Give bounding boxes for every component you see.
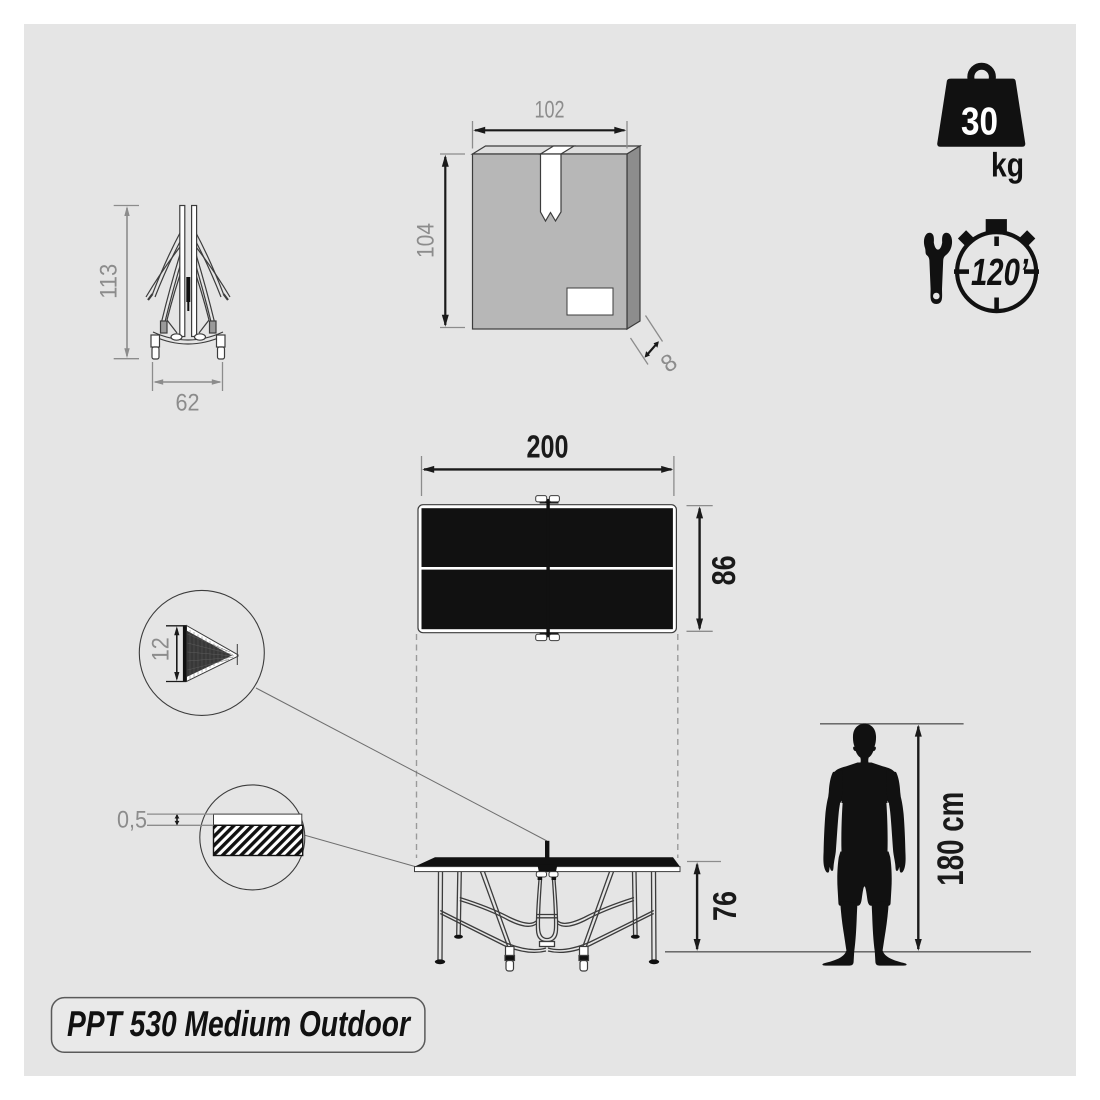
svg-text:113: 113: [96, 264, 123, 299]
svg-text:86: 86: [705, 555, 742, 585]
svg-text:120’: 120’: [971, 252, 1028, 294]
svg-text:PPT 530 Medium Outdoor: PPT 530 Medium Outdoor: [67, 1003, 412, 1044]
svg-text:62: 62: [176, 390, 200, 417]
svg-text:102: 102: [535, 97, 565, 124]
svg-text:76: 76: [706, 891, 743, 921]
svg-text:104: 104: [413, 223, 440, 258]
svg-text:0,5: 0,5: [117, 807, 147, 834]
svg-text:200: 200: [527, 429, 569, 465]
svg-text:kg: kg: [991, 147, 1024, 185]
svg-text:12: 12: [148, 637, 175, 661]
svg-text:30: 30: [961, 101, 998, 144]
svg-text:180 cm: 180 cm: [930, 792, 971, 886]
